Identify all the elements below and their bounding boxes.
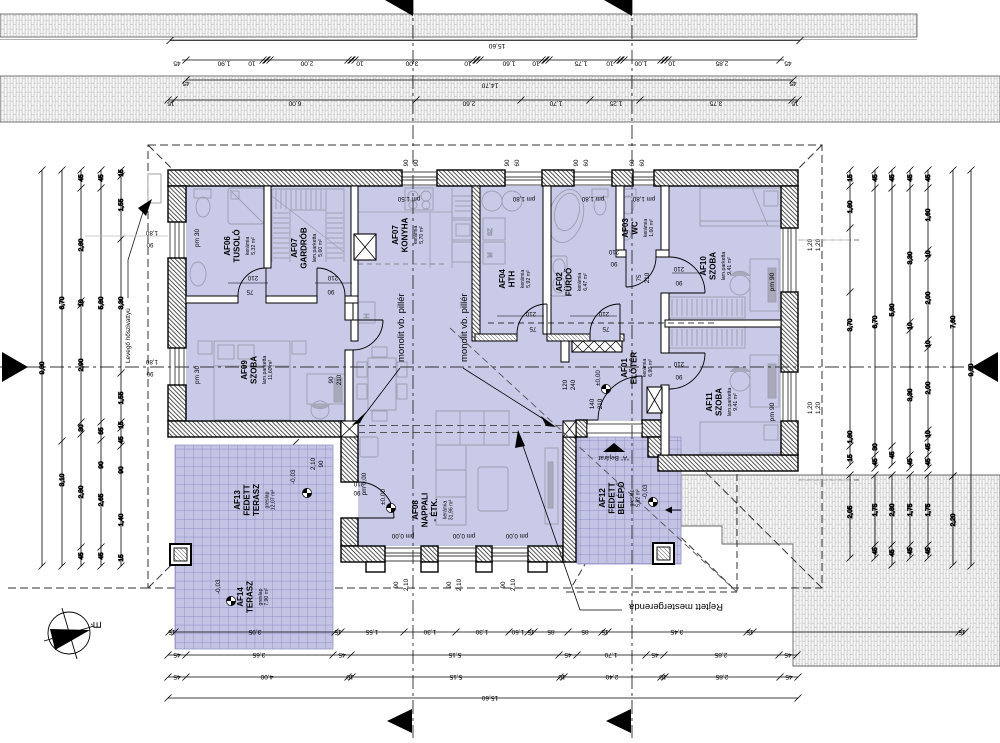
svg-text:5,15: 5,15 — [449, 673, 462, 680]
svg-text:45: 45 — [78, 552, 85, 560]
svg-text:monolit vb. pillér: monolit vb. pillér — [396, 293, 407, 362]
svg-text:1,80: 1,80 — [145, 229, 158, 236]
svg-text:45: 45 — [889, 451, 896, 459]
svg-text:15: 15 — [118, 169, 125, 177]
svg-text:2,80: 2,80 — [78, 238, 85, 251]
svg-text:210: 210 — [673, 265, 684, 272]
svg-text:3,30: 3,30 — [907, 388, 914, 401]
svg-text:2,00: 2,00 — [925, 291, 932, 304]
svg-text:90: 90 — [328, 376, 335, 383]
svg-text:5,70 m²: 5,70 m² — [419, 226, 425, 244]
svg-text:45: 45 — [785, 673, 793, 680]
svg-text:AF06: AF06 — [223, 236, 232, 256]
svg-text:45: 45 — [98, 552, 105, 560]
svg-text:45: 45 — [651, 651, 659, 658]
svg-text:9,41 m²: 9,41 m² — [733, 393, 739, 411]
svg-text:45: 45 — [872, 174, 879, 182]
svg-text:7,60: 7,60 — [950, 315, 957, 328]
svg-text:2,05: 2,05 — [847, 505, 854, 518]
svg-text:10: 10 — [78, 299, 85, 307]
svg-text:15: 15 — [847, 174, 854, 182]
svg-text:AF02: AF02 — [555, 272, 564, 292]
svg-text:90: 90 — [118, 466, 125, 474]
svg-text:5,15: 5,15 — [448, 651, 461, 658]
svg-text:3,65: 3,65 — [252, 651, 265, 658]
svg-text:90: 90 — [393, 581, 400, 588]
svg-text:210: 210 — [608, 248, 619, 255]
svg-text:NAPPALI: NAPPALI — [421, 493, 430, 528]
svg-text:45: 45 — [925, 458, 932, 466]
svg-text:90: 90 — [573, 159, 580, 166]
svg-text:45: 45 — [925, 547, 932, 555]
svg-text:HTH: HTH — [508, 271, 517, 288]
svg-text:45: 45 — [182, 79, 190, 86]
svg-text:45: 45 — [564, 651, 572, 658]
svg-text:75: 75 — [602, 325, 609, 332]
svg-text:10: 10 — [558, 673, 566, 680]
svg-text:3,30: 3,30 — [907, 251, 914, 264]
svg-text:2,60: 2,60 — [462, 99, 475, 106]
svg-text:10: 10 — [464, 59, 472, 66]
svg-text:1,80: 1,80 — [847, 430, 854, 443]
svg-text:45: 45 — [907, 174, 914, 182]
svg-text:45: 45 — [789, 79, 797, 86]
svg-text:14,70: 14,70 — [481, 82, 498, 89]
svg-text:5,32 m²: 5,32 m² — [251, 237, 257, 255]
svg-text:7,90 m²: 7,90 m² — [264, 588, 270, 606]
svg-text:90: 90 — [327, 288, 334, 295]
svg-text:10: 10 — [346, 673, 354, 680]
svg-text:45: 45 — [784, 651, 792, 658]
svg-text:pm 30: pm 30 — [194, 229, 201, 248]
svg-text:AF11: AF11 — [705, 392, 714, 412]
svg-text:AF10: AF10 — [699, 256, 708, 276]
svg-text:15: 15 — [791, 99, 799, 106]
svg-text:pm 90: pm 90 — [769, 402, 776, 421]
svg-text:10: 10 — [532, 59, 540, 66]
svg-text:Rejtett mestergerenda: Rejtett mestergerenda — [628, 601, 723, 612]
svg-text:45: 45 — [872, 547, 879, 555]
svg-text:60: 60 — [583, 159, 590, 166]
svg-text:9,41 m²: 9,41 m² — [727, 257, 733, 275]
svg-text:-0,03: -0,03 — [290, 469, 297, 484]
svg-text:ELŐTÉR: ELŐTÉR — [630, 352, 639, 385]
svg-text:10: 10 — [907, 322, 914, 330]
svg-text:2,10: 2,10 — [403, 578, 410, 591]
svg-text:90: 90 — [675, 373, 682, 380]
svg-text:5,60 m²: 5,60 m² — [318, 239, 324, 257]
svg-text:FEDETT: FEDETT — [608, 482, 617, 513]
svg-text:monolit vb. pillér: monolit vb. pillér — [459, 293, 470, 362]
svg-text:120: 120 — [562, 379, 569, 390]
svg-text:60: 60 — [514, 159, 521, 166]
svg-text:6,00: 6,00 — [288, 99, 301, 106]
svg-text:AF07: AF07 — [290, 238, 299, 258]
svg-text:1,70: 1,70 — [604, 651, 617, 658]
svg-text:±0,00: ±0,00 — [595, 370, 602, 386]
svg-text:2,00: 2,00 — [925, 381, 932, 394]
svg-text:90: 90 — [504, 159, 511, 166]
svg-text:1,75: 1,75 — [907, 503, 914, 516]
svg-text:45: 45 — [889, 549, 896, 557]
svg-text:2,85: 2,85 — [715, 673, 728, 680]
svg-text:9,80: 9,80 — [39, 361, 46, 374]
svg-text:2,90: 2,90 — [78, 358, 85, 371]
svg-text:5,82 m²: 5,82 m² — [636, 489, 642, 507]
svg-text:90: 90 — [610, 260, 617, 267]
svg-text:210: 210 — [247, 274, 258, 281]
svg-text:15,60: 15,60 — [488, 42, 505, 49]
svg-text:10: 10 — [659, 673, 667, 680]
svg-text:3,75: 3,75 — [709, 99, 722, 106]
svg-text:1,20: 1,20 — [815, 401, 822, 414]
svg-text:1,60: 1,60 — [502, 59, 515, 66]
svg-text:1,60: 1,60 — [511, 628, 524, 635]
svg-text:Levegő hőszivattyú: Levegő hőszivattyú — [125, 308, 132, 363]
svg-text:90: 90 — [446, 581, 453, 588]
svg-text:pm 0,00: pm 0,00 — [391, 532, 414, 539]
svg-text:1,25: 1,25 — [609, 99, 622, 106]
svg-text:SZOBA: SZOBA — [715, 388, 724, 416]
svg-text:15: 15 — [958, 628, 966, 635]
svg-text:2,10: 2,10 — [456, 578, 463, 591]
svg-text:pm 1:50: pm 1:50 — [397, 195, 420, 202]
svg-text:45: 45 — [872, 458, 879, 466]
svg-text:140: 140 — [589, 398, 596, 409]
svg-text:AF14: AF14 — [236, 587, 245, 607]
svg-text:12,07 m²: 12,07 m² — [271, 489, 277, 510]
svg-text:210: 210 — [644, 272, 651, 283]
svg-text:60: 60 — [639, 159, 646, 166]
svg-text:AF01: AF01 — [620, 358, 629, 378]
svg-text:SZ: SZ — [488, 228, 494, 236]
svg-text:1,55: 1,55 — [365, 628, 378, 635]
svg-text:pm 30: pm 30 — [194, 366, 201, 385]
svg-text:90: 90 — [98, 461, 105, 469]
svg-text:210: 210 — [353, 480, 364, 487]
svg-text:15: 15 — [746, 628, 754, 635]
svg-text:5,92 m²: 5,92 m² — [526, 270, 532, 288]
svg-text:AF12: AF12 — [598, 488, 607, 508]
svg-text:15: 15 — [527, 628, 535, 635]
svg-text:TERASZ: TERASZ — [252, 484, 261, 516]
svg-text:2,80: 2,80 — [78, 485, 85, 498]
svg-text:É: É — [91, 621, 104, 628]
svg-text:FEDETT: FEDETT — [243, 484, 252, 515]
svg-text:90: 90 — [146, 370, 153, 377]
svg-text:1,75: 1,75 — [574, 59, 587, 66]
svg-text:5,80: 5,80 — [889, 303, 896, 316]
svg-text:WC: WC — [631, 221, 640, 235]
svg-text:9,80: 9,80 — [968, 363, 975, 376]
svg-text:1,60: 1,60 — [925, 208, 932, 221]
svg-text:90: 90 — [353, 489, 360, 496]
svg-text:15: 15 — [118, 421, 125, 429]
svg-text:AF08: AF08 — [411, 500, 420, 520]
svg-text:30: 30 — [872, 443, 879, 451]
svg-text:pm 1,80: pm 1,80 — [632, 195, 655, 202]
svg-text:45: 45 — [78, 174, 85, 182]
svg-text:60: 60 — [629, 159, 636, 166]
svg-text:-0,03: -0,03 — [642, 484, 649, 499]
svg-text:10: 10 — [248, 59, 256, 66]
svg-text:75: 75 — [529, 325, 536, 332]
svg-text:10: 10 — [925, 250, 932, 258]
svg-text:2,10: 2,10 — [510, 578, 517, 591]
svg-text:11,60 m²: 11,60 m² — [268, 360, 274, 380]
svg-text:45: 45 — [173, 59, 181, 66]
svg-text:45: 45 — [784, 59, 792, 66]
svg-text:210: 210 — [336, 374, 343, 385]
svg-text:10: 10 — [925, 340, 932, 348]
svg-text:1,60 m²: 1,60 m² — [649, 219, 655, 237]
svg-text:M: M — [488, 253, 494, 258]
svg-text:2,65: 2,65 — [98, 493, 105, 506]
svg-text:90: 90 — [500, 581, 507, 588]
svg-text:10: 10 — [606, 59, 614, 66]
svg-text:AF03: AF03 — [621, 218, 630, 238]
svg-text:1,55: 1,55 — [118, 391, 125, 404]
svg-text:pm 1,80: pm 1,80 — [512, 195, 535, 202]
svg-text:1,75: 1,75 — [925, 503, 932, 516]
svg-text:3,95: 3,95 — [248, 628, 261, 635]
svg-text:45: 45 — [889, 174, 896, 182]
svg-text:15: 15 — [168, 628, 176, 635]
svg-text:85: 85 — [547, 628, 555, 635]
svg-text:45: 45 — [173, 651, 181, 658]
svg-text:- ÉTK.: - ÉTK. — [430, 498, 439, 521]
svg-text:6,70: 6,70 — [59, 296, 66, 309]
svg-text:3,10: 3,10 — [59, 473, 66, 486]
svg-text:210: 210 — [673, 360, 684, 367]
svg-text:KONYHA: KONYHA — [401, 217, 410, 252]
svg-text:31,96 m²: 31,96 m² — [449, 499, 455, 520]
svg-text:6,90 m²: 6,90 m² — [648, 359, 654, 377]
svg-text:H: H — [364, 313, 371, 318]
svg-text:TERASZ: TERASZ — [246, 581, 255, 613]
svg-text:1,00: 1,00 — [634, 59, 647, 66]
svg-text:6,47 m²: 6,47 m² — [583, 273, 589, 291]
svg-text:SZOBA: SZOBA — [250, 356, 259, 384]
svg-text:45: 45 — [907, 458, 914, 466]
svg-text:1,40: 1,40 — [118, 513, 125, 526]
svg-text:65: 65 — [98, 427, 105, 435]
svg-text:45: 45 — [118, 436, 125, 444]
svg-text:2,10: 2,10 — [310, 457, 317, 470]
svg-text:TUSOLÓ: TUSOLÓ — [233, 229, 242, 262]
svg-text:pm 1,80: pm 1,80 — [581, 195, 604, 202]
svg-text:15: 15 — [601, 628, 609, 635]
svg-text:pm 0,00: pm 0,00 — [452, 532, 475, 539]
svg-text:AF13: AF13 — [233, 490, 242, 510]
svg-text:90: 90 — [403, 159, 410, 166]
svg-text:AF09: AF09 — [240, 360, 249, 380]
svg-text:FÜRDŐ: FÜRDŐ — [565, 268, 574, 296]
svg-text:±0,00: ±0,00 — [380, 489, 387, 505]
svg-text:75: 75 — [636, 274, 643, 281]
svg-text:210: 210 — [597, 398, 604, 409]
svg-text:45: 45 — [925, 443, 932, 451]
svg-text:2,80: 2,80 — [889, 503, 896, 516]
svg-text:4,00: 4,00 — [260, 673, 273, 680]
svg-text:BELÉPŐ: BELÉPŐ — [617, 482, 626, 515]
svg-text:75: 75 — [246, 288, 253, 295]
svg-text:1,80: 1,80 — [145, 358, 158, 365]
svg-text:2,00: 2,00 — [300, 59, 313, 66]
svg-text:90: 90 — [146, 241, 153, 248]
svg-text:15: 15 — [847, 454, 854, 462]
svg-text:45: 45 — [98, 174, 105, 182]
svg-text:240: 240 — [570, 379, 577, 390]
svg-text:pm 90: pm 90 — [769, 272, 776, 291]
svg-text:6,70: 6,70 — [872, 315, 879, 328]
svg-text:GARDRÓB: GARDRÓB — [300, 227, 309, 269]
svg-text:3,70: 3,70 — [847, 318, 854, 331]
svg-text:85: 85 — [581, 628, 589, 635]
svg-text:45: 45 — [173, 673, 181, 680]
svg-text:90: 90 — [675, 279, 682, 286]
svg-text:15: 15 — [118, 554, 125, 562]
svg-text:45: 45 — [338, 651, 346, 658]
svg-text:3,45: 3,45 — [670, 628, 683, 635]
svg-text:10: 10 — [668, 59, 676, 66]
svg-text:1,80: 1,80 — [847, 200, 854, 213]
svg-text:210: 210 — [327, 274, 338, 281]
svg-text:SZOBA: SZOBA — [709, 252, 718, 280]
svg-text:1,55: 1,55 — [118, 198, 125, 211]
svg-text:2,20: 2,20 — [950, 513, 957, 526]
svg-text:"A" Bejárat: "A" Bejárat — [598, 454, 629, 461]
svg-text:3,30: 3,30 — [118, 296, 125, 309]
svg-text:90: 90 — [413, 159, 420, 166]
svg-text:1,20: 1,20 — [807, 401, 814, 414]
svg-text:90: 90 — [318, 460, 325, 467]
svg-text:-0,03: -0,03 — [215, 579, 222, 594]
svg-text:30: 30 — [78, 424, 85, 432]
svg-text:1,30: 1,30 — [423, 628, 436, 635]
svg-text:3,00: 3,00 — [405, 59, 418, 66]
svg-text:15,60: 15,60 — [481, 694, 498, 701]
svg-text:AF07: AF07 — [391, 225, 400, 245]
svg-text:AF04: AF04 — [498, 269, 507, 289]
svg-text:2,40: 2,40 — [605, 673, 618, 680]
svg-text:10: 10 — [356, 59, 364, 66]
svg-text:5,80: 5,80 — [98, 296, 105, 309]
svg-text:15: 15 — [167, 99, 175, 106]
svg-text:45: 45 — [907, 547, 914, 555]
svg-text:2,85: 2,85 — [714, 651, 727, 658]
svg-text:1,70: 1,70 — [549, 99, 562, 106]
svg-text:45: 45 — [925, 174, 932, 182]
svg-text:1,30: 1,30 — [475, 628, 488, 635]
svg-text:2,85: 2,85 — [715, 59, 728, 66]
svg-text:1,75: 1,75 — [872, 503, 879, 516]
svg-text:15: 15 — [334, 628, 342, 635]
svg-text:1,90: 1,90 — [217, 59, 230, 66]
svg-text:10: 10 — [925, 430, 932, 438]
svg-text:pm 0,00: pm 0,00 — [505, 532, 528, 539]
